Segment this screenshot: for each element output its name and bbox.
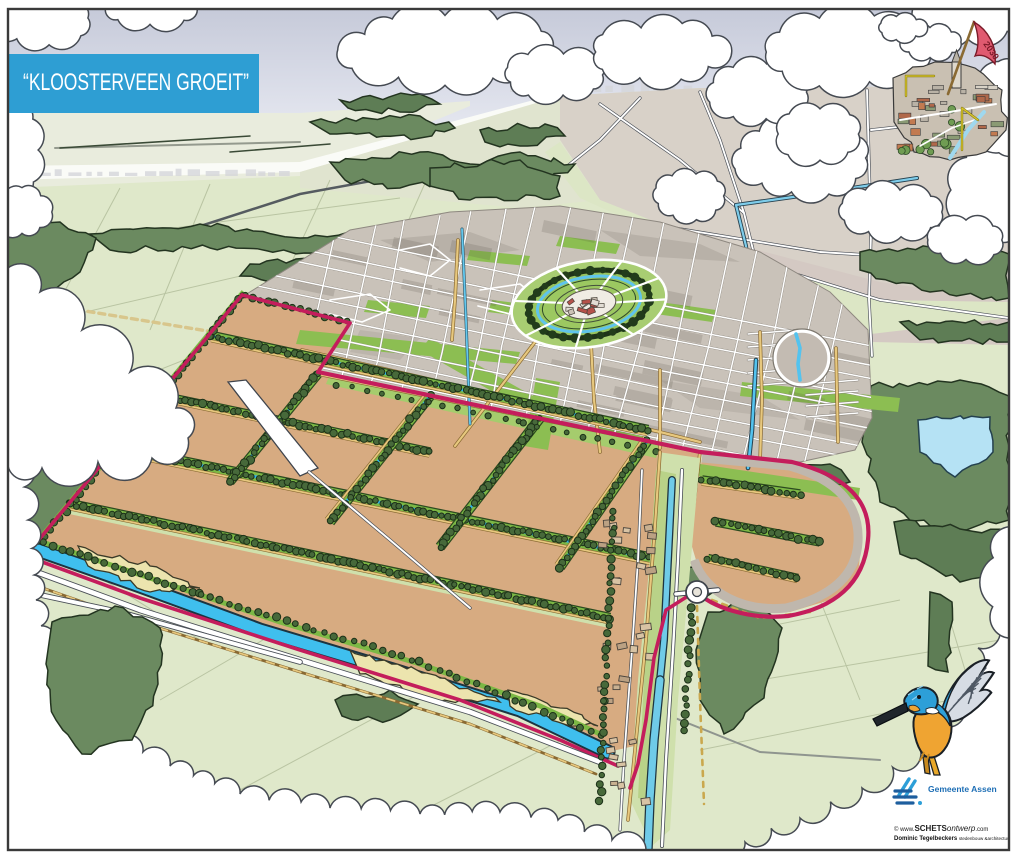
svg-text:Gemeente Assen: Gemeente Assen (928, 784, 997, 794)
svg-text:“KLOOSTERVEEN GROEIT”: “KLOOSTERVEEN GROEIT” (23, 69, 249, 96)
